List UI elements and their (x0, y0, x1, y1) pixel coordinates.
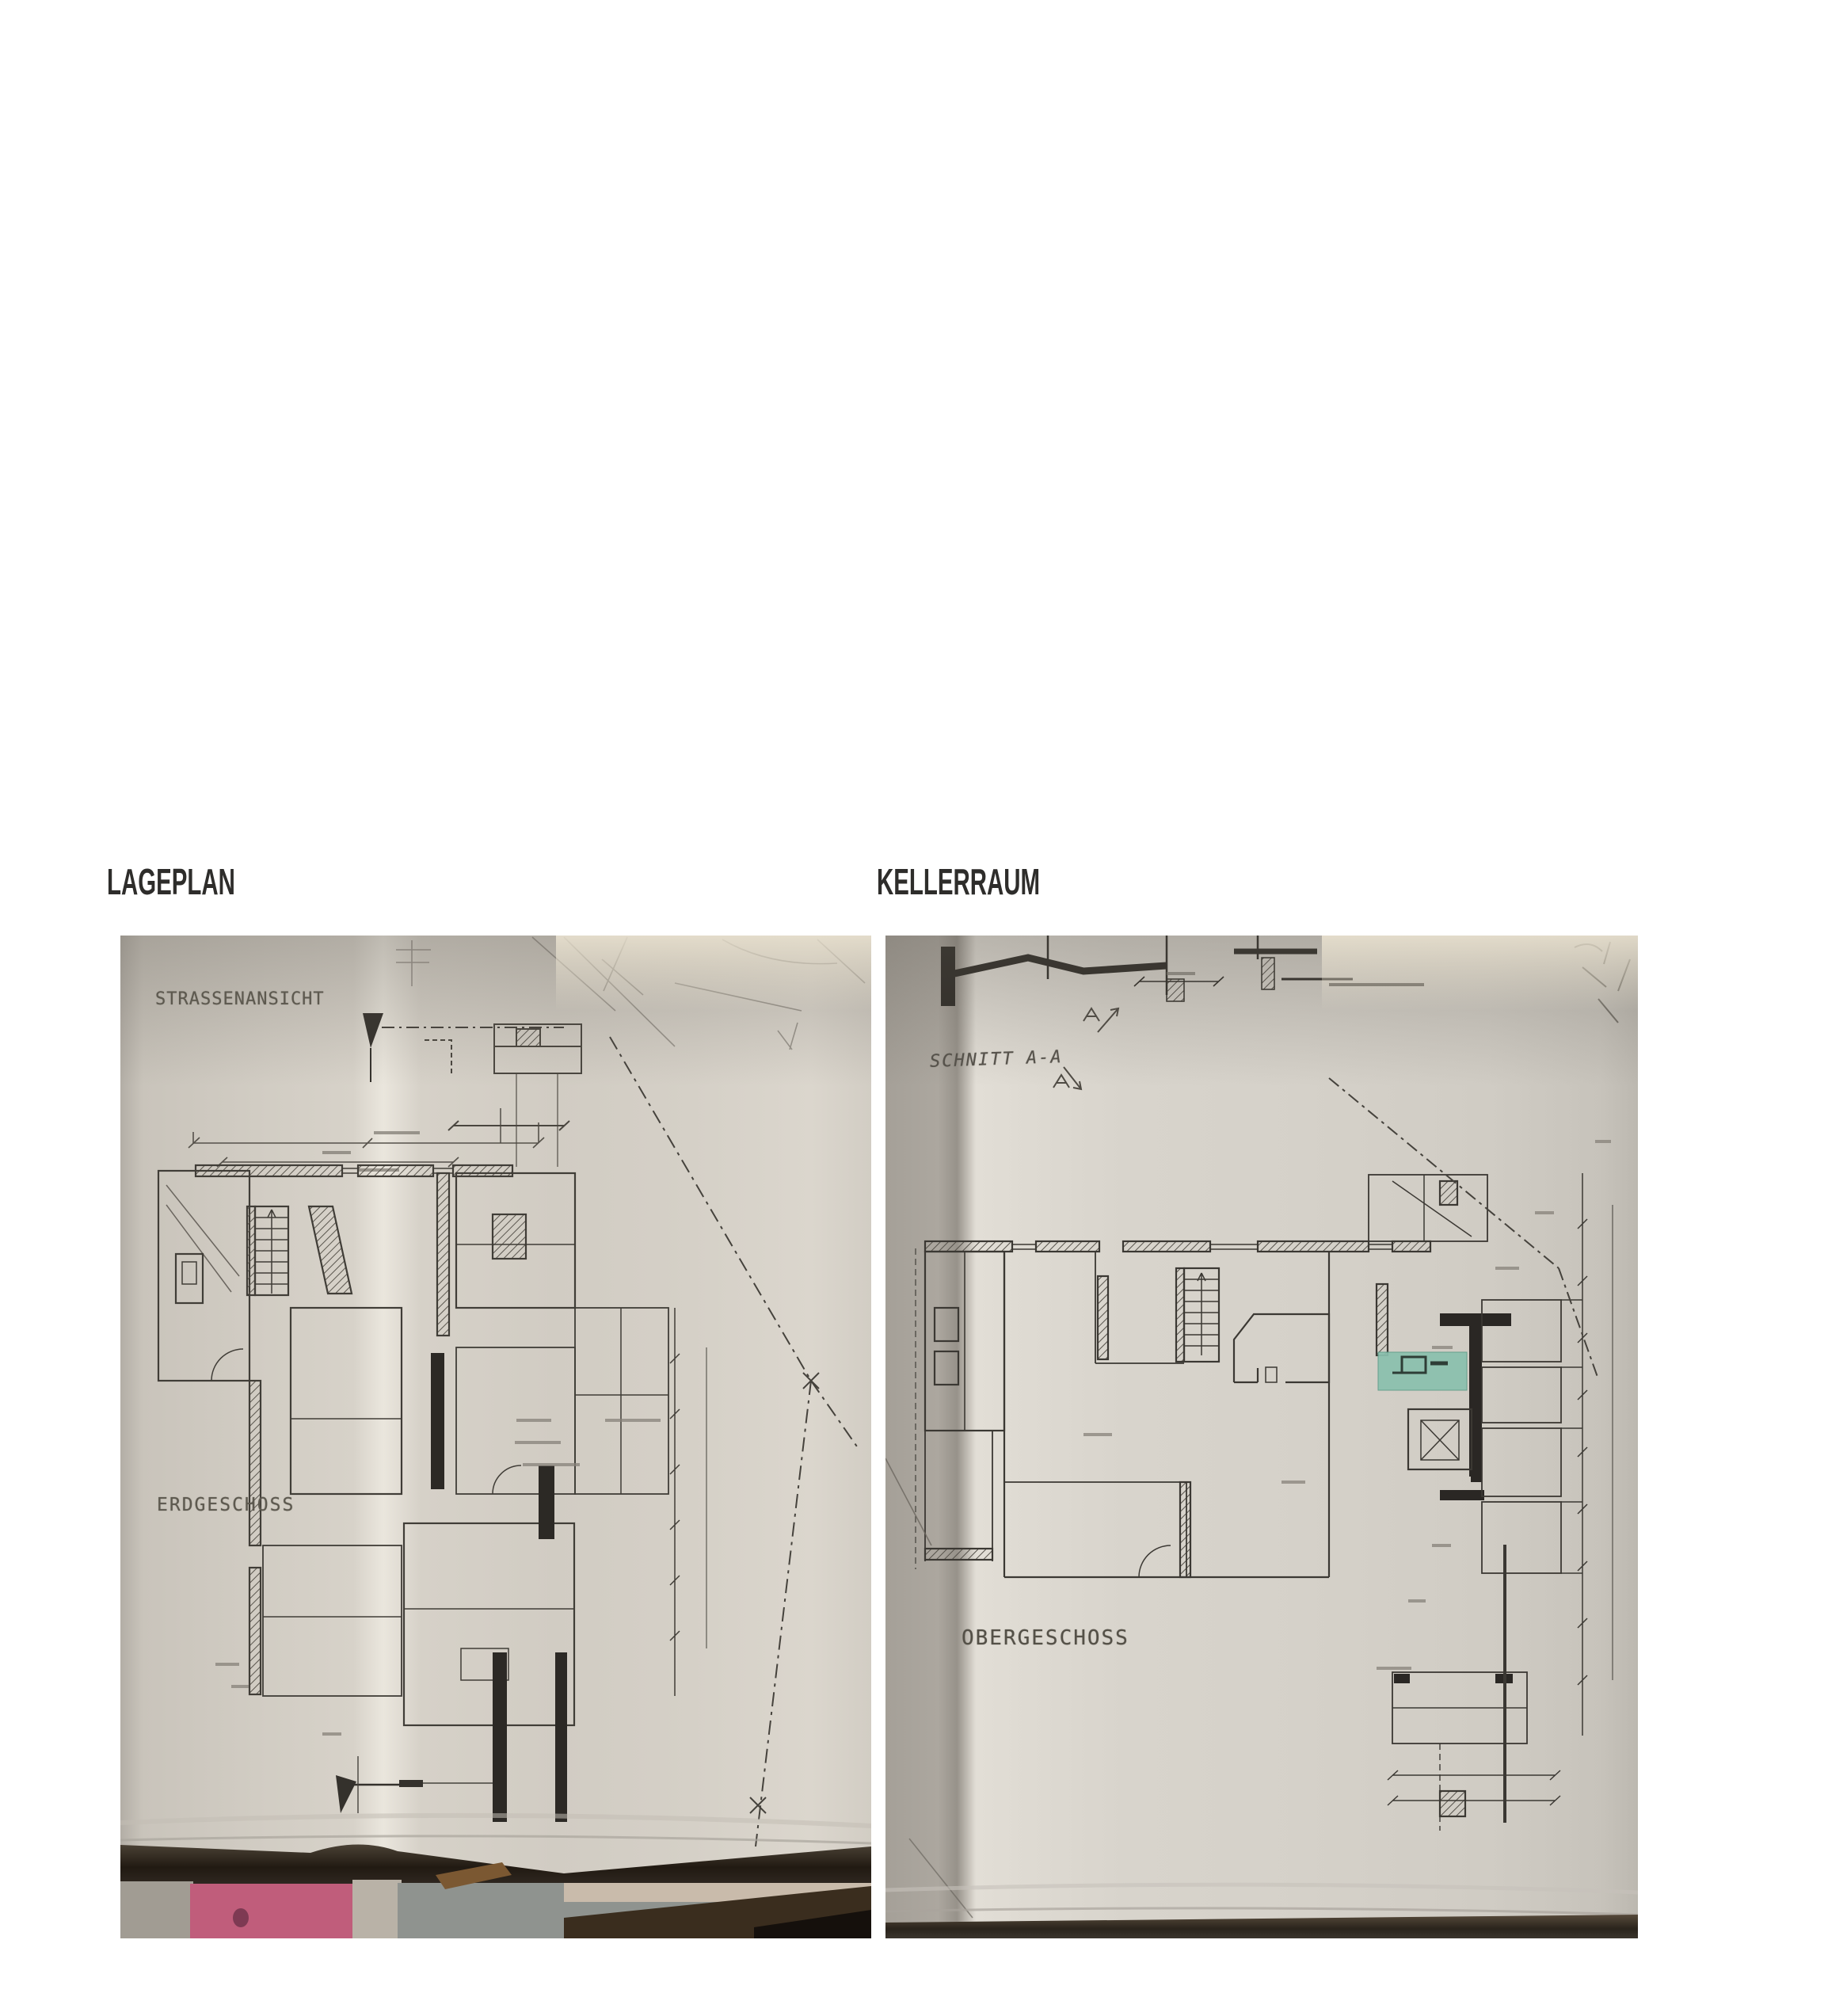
paper-wrinkle (120, 1836, 871, 1843)
floor-plan-walls (158, 1165, 706, 1822)
site-plan-drawing (120, 936, 871, 1938)
section-cut-lines (941, 936, 1424, 1006)
dimension-lines (189, 1122, 544, 1170)
pencil-line (909, 1839, 973, 1918)
site-boundary-lines (610, 1037, 859, 1846)
section-arrow-icon (336, 1756, 493, 1813)
lageplan-heading: LAGEPLAN (107, 860, 235, 903)
paper-wrinkle (885, 1885, 1638, 1892)
pencil-sketch-lines (396, 937, 865, 1050)
boundary-lines (1329, 1078, 1598, 1379)
document-page: LAGEPLAN KELLERRAUM (0, 0, 1847, 2016)
stair-icon (1176, 1268, 1219, 1362)
garage-block (425, 1024, 581, 1167)
pink-folder (190, 1884, 352, 1938)
kellerraum-photo: SCHNITT A-A OBERGESCHOSS (885, 936, 1638, 1938)
corner-scribble (1575, 942, 1630, 1023)
strassenansicht-label: STRASSENANSICHT (155, 989, 325, 1009)
kellerraum-heading: KELLERRAUM (877, 860, 1040, 903)
highlighted-room (1378, 1352, 1467, 1390)
lageplan-photo: STRASSENANSICHT ERDGESCHOSS (120, 936, 871, 1938)
section-label-arrows (1053, 1008, 1118, 1089)
erdgeschoss-label: ERDGESCHOSS (157, 1495, 295, 1515)
basement-plan-drawing (885, 936, 1638, 1938)
obergeschoss-label: OBERGESCHOSS (962, 1626, 1129, 1650)
paper-wrinkle (885, 1908, 1638, 1915)
stair-icon (247, 1206, 288, 1295)
floor-plan-walls (916, 1141, 1613, 1831)
boundary-x-marks (750, 1373, 819, 1813)
table-edge-shadow (885, 1915, 1638, 1938)
